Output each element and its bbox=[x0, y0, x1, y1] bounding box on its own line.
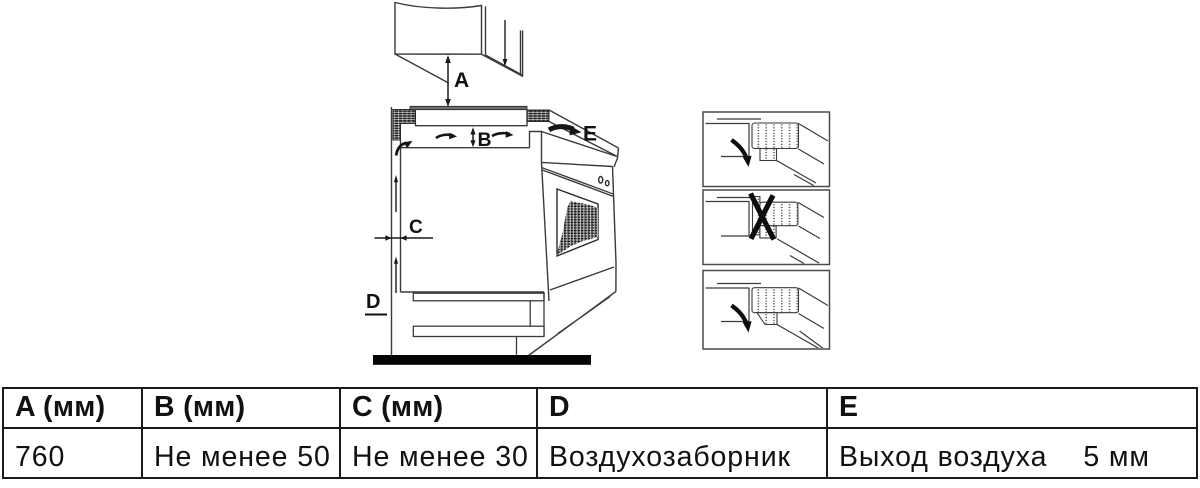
svg-text:B: B bbox=[478, 129, 492, 151]
svg-text:C: C bbox=[409, 217, 423, 238]
svg-text:A: A bbox=[454, 69, 469, 92]
svg-text:D: D bbox=[366, 291, 380, 313]
svg-text:E: E bbox=[583, 123, 597, 146]
